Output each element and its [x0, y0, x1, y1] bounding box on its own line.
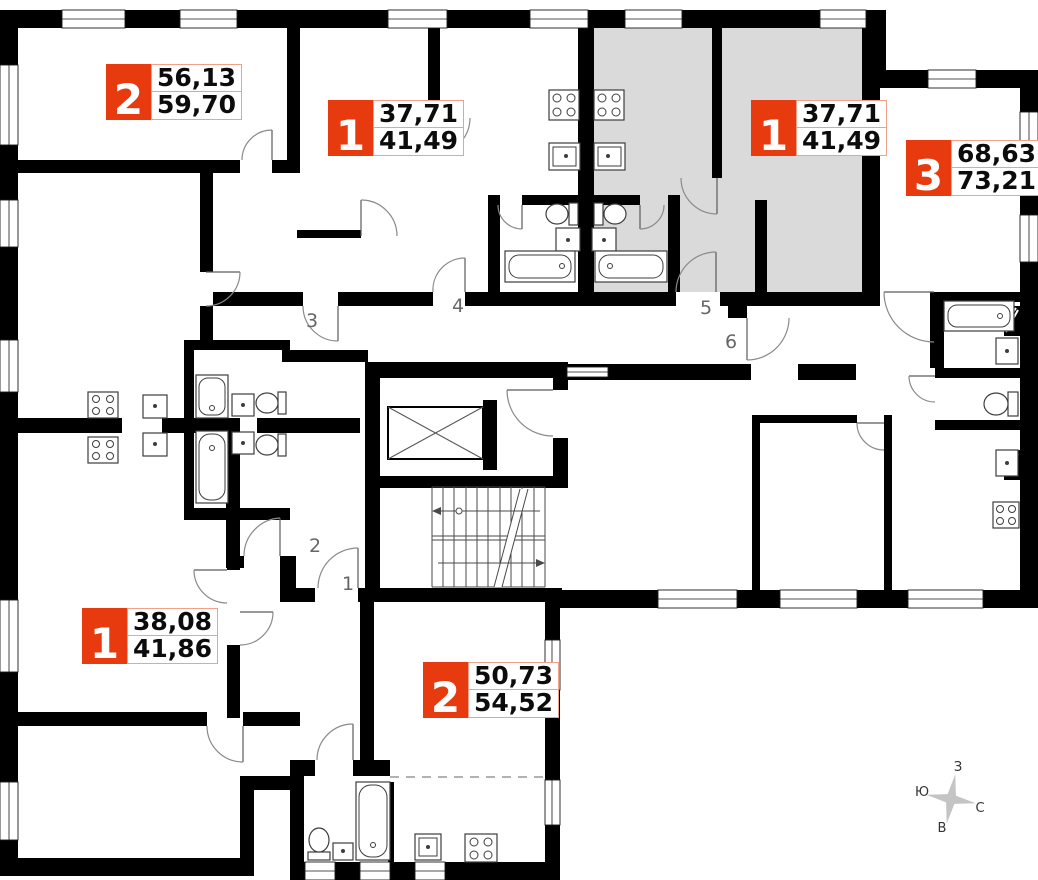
- kitchen-sink-icon: [415, 834, 441, 860]
- kitchen-sink-icon: [143, 395, 167, 418]
- door-number-6: 6: [725, 331, 737, 353]
- door-number-5: 5: [700, 297, 712, 319]
- room-count: 2: [106, 64, 151, 120]
- area-living: 38,08: [128, 609, 217, 636]
- room-count: 1: [82, 608, 127, 664]
- room-count: 3: [906, 140, 951, 196]
- area-values: 68,63 73,21: [951, 140, 1038, 196]
- area-total: 73,21: [952, 168, 1038, 194]
- room-count: 1: [751, 100, 796, 156]
- toilet-icon: [256, 434, 286, 456]
- area-total: 41,49: [797, 128, 886, 154]
- compass-north-label: С: [975, 801, 984, 816]
- apartment-badge-bottom-middle[interactable]: 2 50,73 54,52: [423, 662, 559, 718]
- compass-west-label: З: [954, 760, 962, 775]
- area-living: 56,13: [152, 65, 241, 92]
- door-number-4: 4: [452, 295, 464, 317]
- bathtub-icon: [505, 251, 575, 282]
- door-number-2: 2: [309, 535, 321, 557]
- apartment-badge-bottom-left[interactable]: 1 38,08 41,86: [82, 608, 218, 664]
- stairs: [432, 487, 545, 587]
- sink-icon: [232, 394, 254, 416]
- stove-icon: [465, 834, 497, 862]
- door-number-3: 3: [306, 310, 318, 332]
- area-living: 68,63: [952, 141, 1038, 168]
- kitchen-sink-icon: [549, 143, 580, 170]
- sink-icon: [556, 228, 580, 251]
- stove-icon: [993, 502, 1019, 528]
- room-count: 2: [423, 662, 468, 718]
- area-values: 50,73 54,52: [468, 662, 559, 718]
- area-living: 37,71: [797, 101, 886, 128]
- bathtub-icon: [595, 251, 667, 282]
- bathtub-icon: [196, 375, 228, 418]
- toilet-icon: [594, 203, 626, 225]
- sink-icon: [232, 432, 254, 454]
- toilet-icon: [984, 392, 1018, 416]
- area-values: 37,71 41,49: [796, 100, 887, 156]
- area-values: 38,08 41,86: [127, 608, 218, 664]
- area-living: 50,73: [469, 663, 558, 690]
- area-total: 41,49: [374, 128, 463, 154]
- toilet-icon: [256, 392, 286, 414]
- stove-icon: [549, 90, 579, 120]
- sink-icon: [996, 450, 1018, 476]
- bathtub-icon: [356, 782, 390, 860]
- bathtub-icon: [196, 431, 228, 503]
- floor-plan: 1 2 3 4 5 6 З Ю С В 2 56,13 59,70 1 37,7…: [0, 0, 1038, 880]
- elevator: [388, 407, 483, 459]
- stove-icon: [88, 392, 118, 418]
- sink-icon: [996, 338, 1018, 364]
- area-values: 56,13 59,70: [151, 64, 242, 120]
- apartment-badge-top-left[interactable]: 2 56,13 59,70: [106, 64, 242, 120]
- kitchen-sink-icon: [594, 143, 625, 170]
- area-values: 37,71 41,49: [373, 100, 464, 156]
- sink-icon: [592, 228, 616, 251]
- kitchen-sink-icon: [143, 433, 167, 456]
- area-total: 41,86: [128, 636, 217, 662]
- compass-star: [926, 774, 975, 823]
- apartment-badge-right[interactable]: 3 68,63 73,21: [906, 140, 1038, 196]
- compass: З Ю С В: [915, 760, 985, 836]
- stove-icon: [88, 437, 118, 463]
- door-number-1: 1: [342, 573, 354, 595]
- apartment-badge-top-right-selected[interactable]: 1 37,71 41,49: [751, 100, 887, 156]
- area-total: 59,70: [152, 92, 241, 118]
- room-count: 1: [328, 100, 373, 156]
- toilet-icon: [546, 203, 578, 225]
- bathtub-icon: [944, 301, 1014, 331]
- stove-icon: [594, 90, 624, 120]
- compass-south-label: Ю: [915, 785, 929, 800]
- toilet-icon: [308, 828, 330, 860]
- sink-icon: [333, 843, 353, 860]
- apartment-badge-top-middle[interactable]: 1 37,71 41,49: [328, 100, 464, 156]
- area-living: 37,71: [374, 101, 463, 128]
- compass-east-label: В: [938, 821, 947, 836]
- area-total: 54,52: [469, 690, 558, 716]
